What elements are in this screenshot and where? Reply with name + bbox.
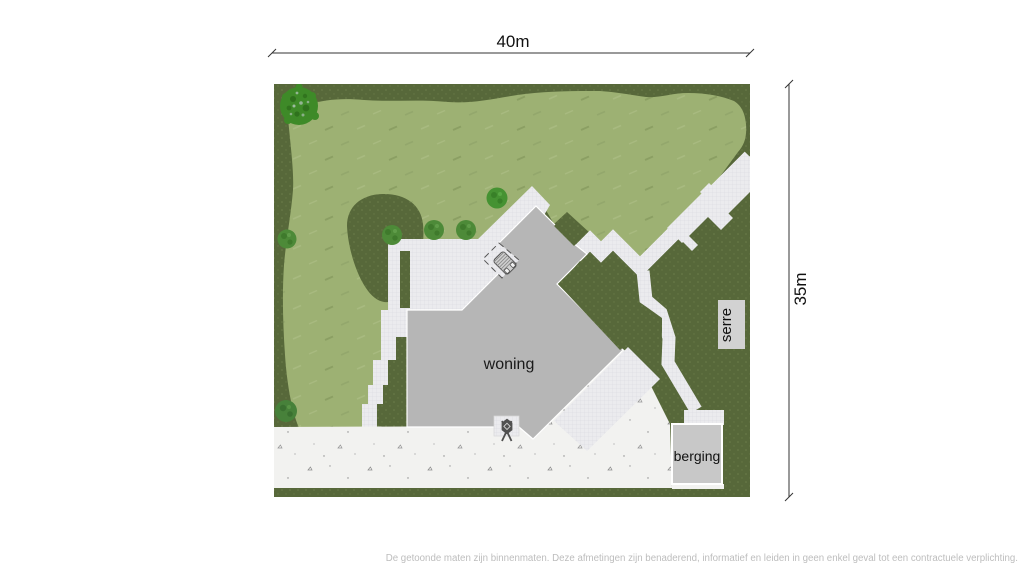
svg-text:40m: 40m: [496, 32, 529, 51]
svg-text:De getoonde maten zijn binnenm: De getoonde maten zijn binnenmaten. Deze…: [386, 553, 1018, 564]
svg-text:35m: 35m: [791, 272, 810, 305]
svg-text:berging: berging: [674, 448, 721, 464]
svg-text:serre: serre: [718, 308, 735, 342]
svg-text:woning: woning: [483, 356, 535, 373]
